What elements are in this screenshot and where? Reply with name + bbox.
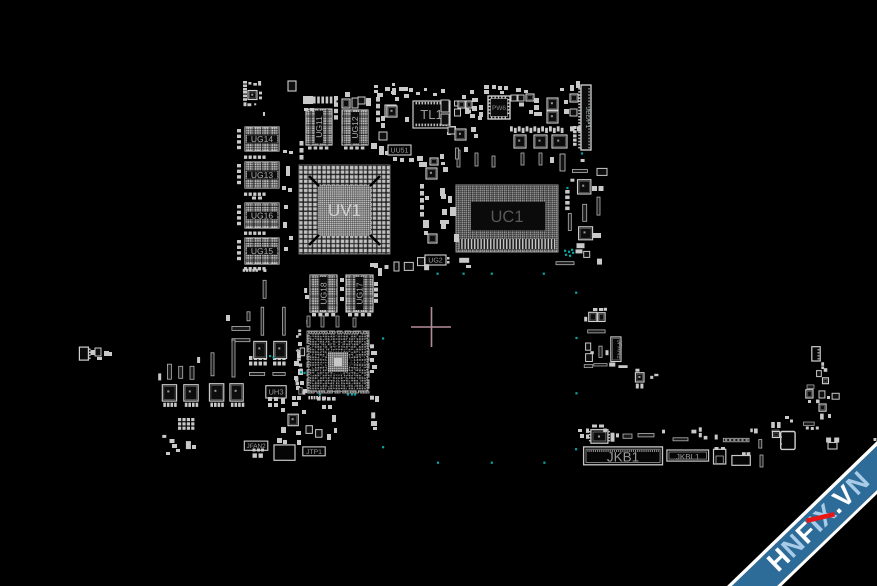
svg-text:UG11: UG11 <box>314 116 324 138</box>
svg-text:UG17: UG17 <box>355 282 365 304</box>
svg-text:UG2: UG2 <box>428 258 443 265</box>
svg-text:UG18: UG18 <box>319 282 329 304</box>
svg-text:UV1: UV1 <box>328 201 361 220</box>
svg-text:UU51: UU51 <box>391 148 409 155</box>
svg-text:JFAN1: JFAN1 <box>615 340 622 359</box>
svg-text:JKB1: JKB1 <box>607 449 639 464</box>
svg-text:JEDP1: JEDP1 <box>584 107 591 129</box>
svg-text:TL1: TL1 <box>420 107 442 122</box>
svg-text:PW6: PW6 <box>492 105 506 112</box>
svg-text:UG15: UG15 <box>251 246 273 256</box>
svg-text:UC1: UC1 <box>490 208 523 226</box>
svg-text:JTP1: JTP1 <box>306 449 322 456</box>
svg-text:UG12: UG12 <box>350 116 360 138</box>
svg-text:UH3: UH3 <box>268 388 283 397</box>
svg-text:UG14: UG14 <box>251 134 273 144</box>
svg-text:JKBL1: JKBL1 <box>676 452 700 461</box>
svg-text:UG16: UG16 <box>251 211 273 221</box>
svg-text:UG13: UG13 <box>251 170 273 180</box>
